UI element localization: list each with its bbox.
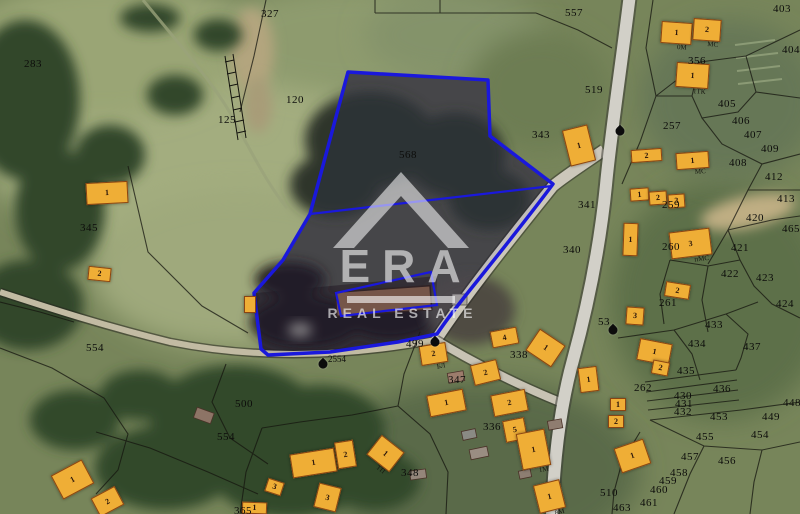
era-tagline-text: REAL ESTATE xyxy=(0,306,800,320)
era-brand-text: ERA xyxy=(0,243,800,289)
era-roof-icon xyxy=(332,170,470,250)
era-watermark: ERA REAL ESTATE xyxy=(0,0,800,514)
era-underline-bar xyxy=(347,296,455,303)
map-canvas[interactable]: 1210М2МС11ТК121МС12313пМС23121121142БЛ21… xyxy=(0,0,800,514)
